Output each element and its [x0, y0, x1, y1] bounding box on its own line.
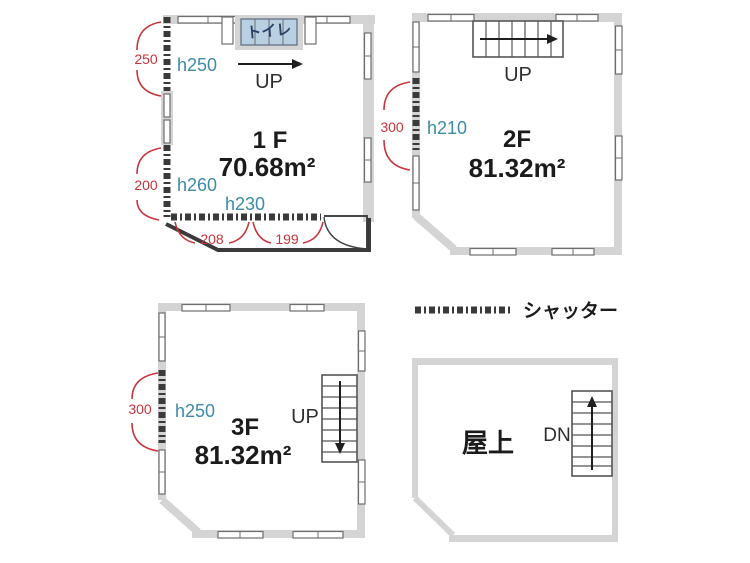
ceiling-height-label: h250 — [177, 55, 217, 75]
shutter-legend: シャッター — [415, 300, 618, 322]
legend-label: シャッター — [523, 300, 618, 322]
up-label: UP — [504, 64, 532, 86]
ceiling-height-label: h210 — [427, 118, 467, 138]
ceiling-height-label: h230 — [225, 194, 265, 214]
floor-label: 2F — [503, 126, 531, 153]
window — [413, 156, 419, 210]
ceiling-height-label: h260 — [177, 175, 217, 195]
wall — [412, 358, 418, 498]
floor-plan-3f: UP h250 3F 81.32m² 300 — [120, 295, 380, 555]
area-label: 70.68m² — [219, 152, 316, 182]
area-label: 81.32m² — [469, 153, 566, 183]
wall — [412, 358, 618, 365]
dimension-label: 199 — [275, 231, 299, 247]
wall-chamfer — [416, 216, 454, 249]
exterior-outline — [166, 218, 369, 250]
window — [218, 532, 263, 539]
window — [616, 26, 623, 74]
floor-plan-1f: トイレ UP h250 1 F 70.68m² h260 h230 250 — [125, 8, 380, 258]
wall-chamfer — [415, 498, 453, 535]
floor-label: 屋上 — [462, 428, 514, 458]
up-arrow-icon — [238, 59, 303, 69]
dimension-label: 300 — [128, 401, 152, 417]
dimension: 300 — [380, 82, 410, 170]
window — [159, 450, 165, 494]
floor-label: 1 F — [253, 127, 288, 154]
wall — [449, 535, 618, 542]
area-label: 81.32m² — [195, 440, 292, 470]
window — [428, 15, 474, 22]
window — [552, 249, 594, 256]
up-label: UP — [255, 71, 283, 93]
window — [182, 305, 230, 312]
floor-plan-2f: UP h210 2F 81.32m² 300 — [370, 8, 630, 260]
dimension: 300 — [128, 373, 158, 451]
floor-label: 3F — [231, 414, 259, 441]
window — [616, 136, 623, 180]
stairs — [473, 21, 563, 57]
window — [556, 15, 598, 22]
dimension: 200 — [134, 148, 161, 220]
window — [359, 331, 366, 371]
dimension-label: 300 — [380, 119, 404, 135]
window — [161, 91, 173, 145]
dimension-label: 208 — [200, 231, 224, 247]
wall — [612, 358, 618, 542]
floorplan-page: トイレ UP h250 1 F 70.68m² h260 h230 250 — [0, 0, 750, 563]
window — [290, 305, 324, 312]
toilet-room: トイレ — [222, 15, 316, 50]
window — [359, 460, 366, 504]
stairs — [322, 375, 357, 462]
entrance-door — [324, 216, 368, 249]
dimension-label: 250 — [134, 51, 158, 67]
wall-chamfer — [162, 500, 198, 532]
window — [470, 249, 516, 256]
roof-plan-and-legend: シャッター DN — [395, 290, 645, 558]
closet — [222, 17, 233, 44]
window — [159, 313, 165, 361]
dn-label: DN — [543, 425, 570, 446]
dimension: 250 — [134, 22, 161, 96]
dimension: 199 — [253, 222, 323, 247]
window — [293, 532, 343, 539]
stairs — [572, 391, 612, 476]
ceiling-height-label: h250 — [175, 401, 215, 421]
floor-plan-roof: DN 屋上 — [412, 358, 618, 542]
closet — [305, 17, 316, 44]
up-label: UP — [291, 406, 319, 428]
window — [413, 22, 419, 72]
dimension-label: 200 — [134, 177, 158, 193]
